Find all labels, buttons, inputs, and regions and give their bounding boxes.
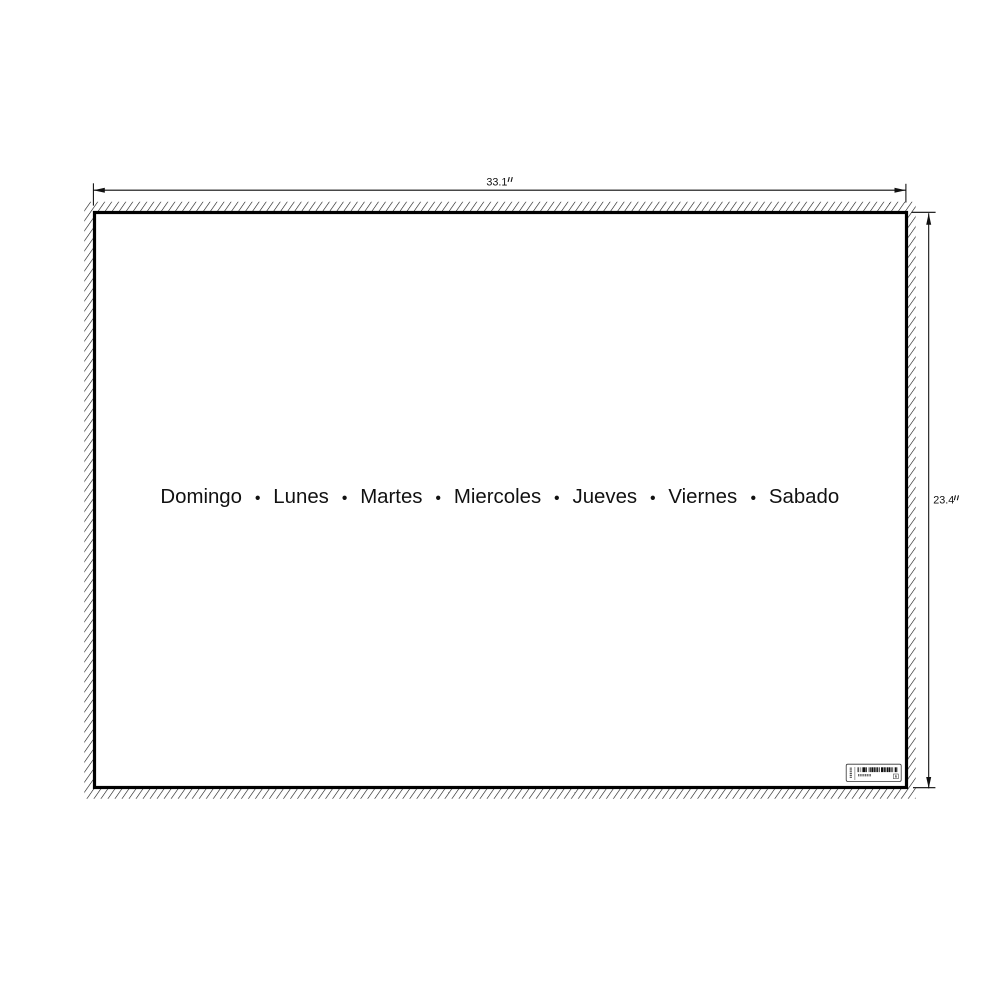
- svg-text:Martes: Martes: [360, 486, 422, 508]
- svg-text:Miercoles: Miercoles: [454, 486, 541, 508]
- svg-text:Viernes: Viernes: [668, 486, 737, 508]
- svg-text:Lunes: Lunes: [273, 486, 329, 508]
- svg-text:33.1: 33.1: [486, 176, 507, 188]
- svg-text:Jueves: Jueves: [573, 486, 638, 508]
- svg-text:Domingo: Domingo: [160, 486, 242, 508]
- svg-text:Sabado: Sabado: [769, 486, 839, 508]
- svg-text:23.4: 23.4: [933, 495, 954, 507]
